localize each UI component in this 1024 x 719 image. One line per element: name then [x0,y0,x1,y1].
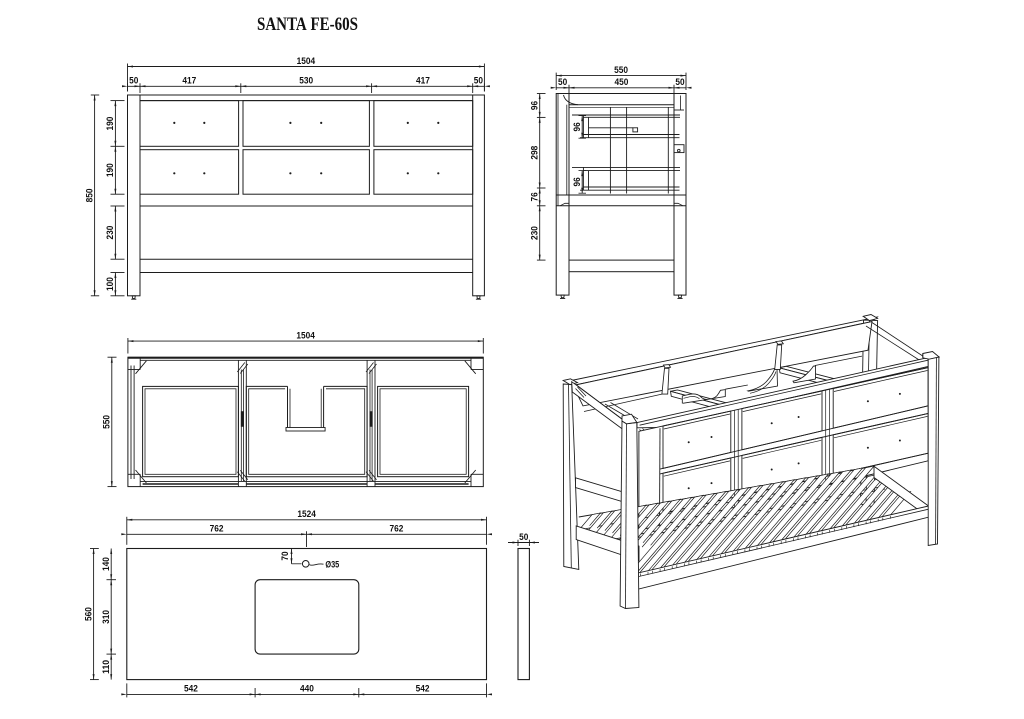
svg-text:1504: 1504 [296,330,315,341]
svg-text:100: 100 [105,277,116,291]
svg-text:1504: 1504 [297,56,316,67]
svg-text:298: 298 [530,145,541,159]
svg-text:110: 110 [101,660,112,674]
svg-text:530: 530 [299,76,313,87]
svg-text:542: 542 [184,684,198,695]
svg-text:230: 230 [530,226,541,240]
svg-text:Ø35: Ø35 [325,560,339,571]
svg-text:76: 76 [530,192,541,201]
svg-text:50: 50 [558,77,567,88]
svg-text:SANTA FE-60S: SANTA FE-60S [257,15,358,35]
svg-text:70: 70 [280,551,291,560]
svg-text:190: 190 [105,163,116,177]
svg-text:190: 190 [105,117,116,131]
svg-text:96: 96 [572,122,583,131]
svg-text:550: 550 [614,65,628,76]
svg-text:50: 50 [474,76,483,87]
svg-text:50: 50 [129,76,138,87]
svg-text:96: 96 [530,101,541,110]
svg-text:550: 550 [102,415,113,429]
svg-text:310: 310 [101,610,112,624]
svg-text:560: 560 [83,607,94,621]
svg-text:850: 850 [84,188,95,202]
svg-text:762: 762 [390,524,404,535]
svg-text:230: 230 [105,226,116,240]
svg-text:50: 50 [519,532,528,543]
svg-text:417: 417 [182,76,196,87]
svg-text:1524: 1524 [297,509,316,520]
svg-text:417: 417 [416,76,430,87]
svg-text:450: 450 [615,77,629,88]
svg-text:50: 50 [675,77,684,88]
svg-text:140: 140 [101,557,112,571]
svg-text:440: 440 [300,684,314,695]
svg-text:762: 762 [210,524,224,535]
svg-text:542: 542 [416,684,430,695]
svg-text:96: 96 [572,177,583,186]
